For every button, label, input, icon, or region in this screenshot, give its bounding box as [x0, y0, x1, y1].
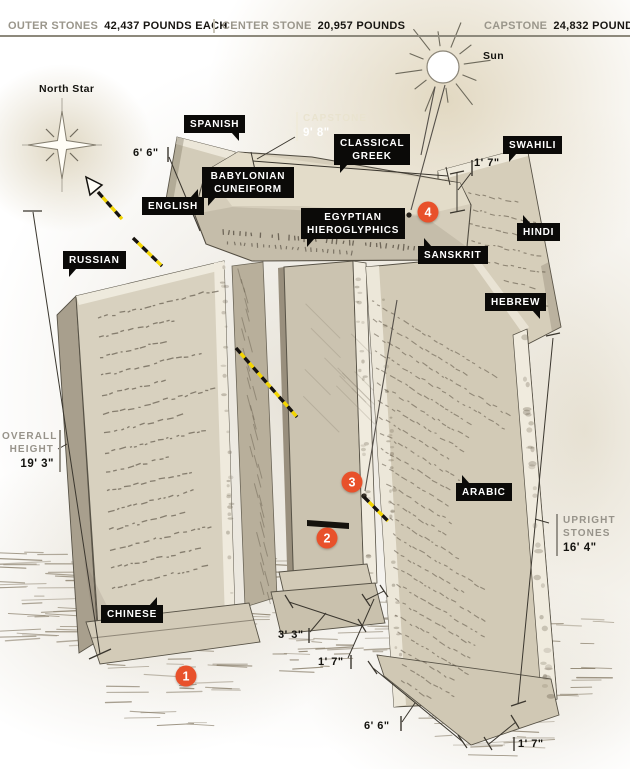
overall-height-measure: OVERALL HEIGHT 19' 3"	[2, 430, 61, 472]
measure-label: OVERALL	[2, 430, 54, 443]
measure-value: 9' 8"	[303, 126, 367, 141]
measure-value: 19' 3"	[2, 457, 54, 472]
center-pillar	[271, 261, 385, 634]
tag-sanskrit: SANSKRIT	[418, 246, 488, 264]
marker-1: 1	[176, 666, 197, 687]
dim-center-width: 3' 3"	[278, 629, 304, 641]
measure-value: 16' 4"	[563, 541, 616, 556]
north-star	[22, 98, 102, 192]
stat-capstone: CAPSTONE24,832 POUNDS	[484, 20, 630, 32]
marker-4: 4	[418, 202, 439, 223]
tag-russian: RUSSIAN	[63, 251, 126, 269]
chinese-stone	[57, 261, 260, 664]
stat-outer-stones: OUTER STONES42,437 POUNDS EACH	[8, 20, 228, 32]
dim-upright-thickness: 1' 7"	[518, 738, 544, 750]
dim-center-thickness: 1' 7"	[318, 656, 344, 668]
measure-label: CAPSTONE	[303, 112, 367, 125]
measure-label: STONES	[563, 527, 616, 540]
tag-egyptian-hieroglyphics: EGYPTIAN HIEROGLYPHICS	[301, 208, 405, 239]
tag-chinese: CHINESE	[101, 605, 163, 623]
upright-stones-measure: UPRIGHT STONES 16' 4"	[556, 514, 616, 556]
measure-label: UPRIGHT	[563, 514, 616, 527]
sun-label: Sun	[483, 50, 504, 62]
capstone-width-measure: CAPSTONE 9' 8"	[296, 112, 367, 141]
stat-label: CAPSTONE	[484, 20, 547, 32]
stat-value: 20,957 POUNDS	[318, 20, 406, 32]
weights-bar: OUTER STONES42,437 POUNDS EACH CENTER ST…	[0, 0, 630, 38]
stat-value: 42,437 POUNDS EACH	[104, 20, 227, 32]
guidestones-infographic: OUTER STONES42,437 POUNDS EACH CENTER ST…	[0, 0, 630, 769]
stat-divider	[213, 19, 215, 33]
tag-spanish: SPANISH	[184, 115, 245, 133]
marker-3: 3	[342, 472, 363, 493]
tag-swahili: SWAHILI	[503, 136, 562, 154]
stat-value: 24,832 POUNDS	[553, 20, 630, 32]
tag-babylonian-cuneiform: BABYLONIAN CUNEIFORM	[202, 167, 294, 198]
stat-label: OUTER STONES	[8, 20, 98, 32]
north-star-label: North Star	[39, 83, 94, 95]
tag-hindi: HINDI	[517, 223, 560, 241]
marker-2: 2	[317, 528, 338, 549]
stat-label: CENTER STONE	[222, 20, 312, 32]
stat-center-stone: CENTER STONE20,957 POUNDS	[222, 20, 405, 32]
dim-upright-width: 6' 6"	[364, 720, 390, 732]
tag-english: ENGLISH	[142, 197, 204, 215]
tag-arabic: ARABIC	[456, 483, 512, 501]
dim-capstone-thickness: 1' 7"	[474, 157, 500, 169]
gap-shadow	[232, 262, 277, 607]
measure-label: HEIGHT	[2, 443, 54, 456]
dim-capstone-length: 6' 6"	[133, 147, 159, 159]
tag-hebrew: HEBREW	[485, 293, 546, 311]
